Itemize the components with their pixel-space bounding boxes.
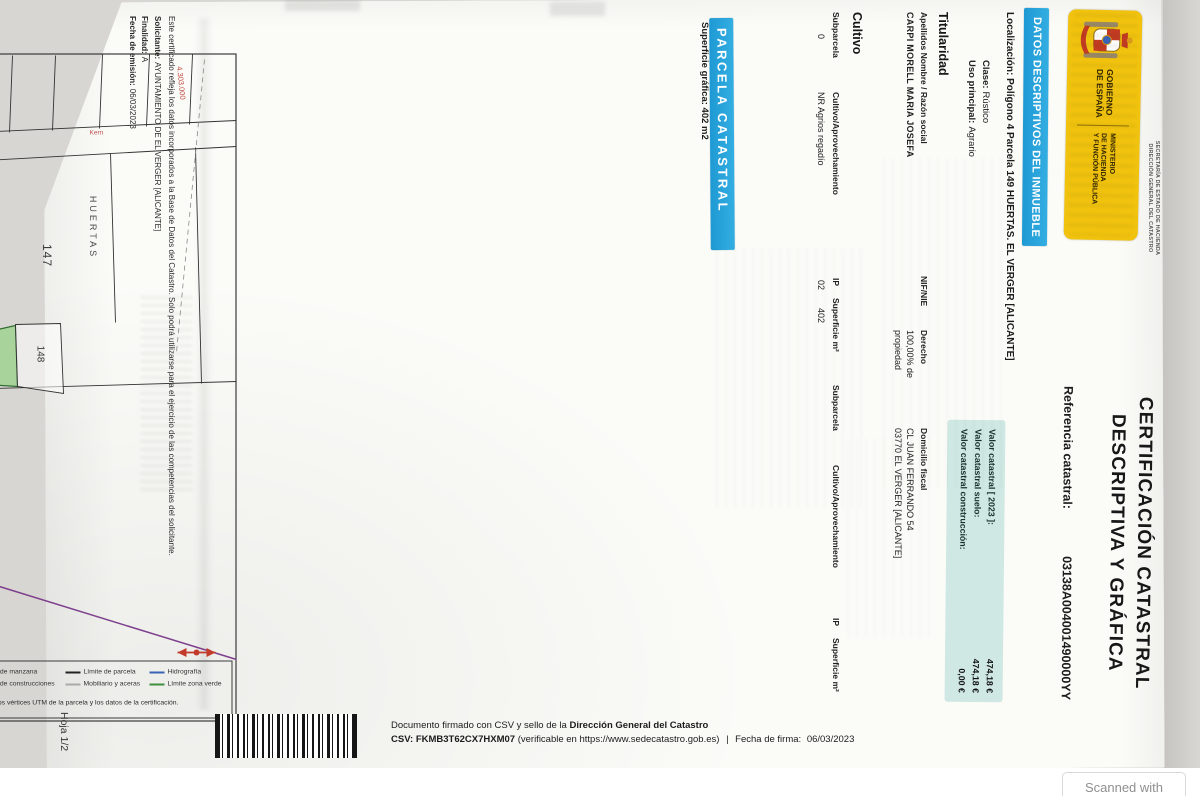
legend-item-zona-verde: Límite zona verde bbox=[150, 680, 234, 687]
legend-items: Límite de manzana Límite de parcela Hidr… bbox=[0, 668, 234, 687]
barcode bbox=[215, 714, 357, 758]
road-label: Kern bbox=[90, 129, 104, 136]
certificate-title: CERTIFICACIÓN CATASTRAL DESCRIPTIVA Y GR… bbox=[1101, 382, 1159, 705]
referencia-value: 03138A004001490000YY bbox=[1059, 556, 1074, 700]
field-uso-principal: Uso principal:Agrario bbox=[966, 60, 977, 157]
cultivo-title: Cultivo bbox=[850, 12, 864, 54]
zone-label-huertas: HUERTAS bbox=[89, 195, 99, 258]
certificate-conditions: Este certificado refleja los datos incor… bbox=[167, 16, 176, 556]
title-line-1: CERTIFICACIÓN CATASTRAL bbox=[1127, 382, 1158, 704]
line-sample-icon bbox=[150, 671, 165, 673]
localizacion-label: Localización: bbox=[1004, 12, 1015, 75]
titularidad-title: Titularidad bbox=[936, 12, 950, 76]
direccion-catastro-label: DIRECCIÓN GENERAL DEL CATASTRO bbox=[1146, 138, 1153, 258]
cultivo-header-superficie-2: Superficie m² bbox=[831, 638, 841, 692]
field-clase: Clase:Rústico bbox=[980, 60, 991, 123]
scan-bleedthrough bbox=[842, 438, 930, 638]
localizacion-value: Polígono 4 Parcela 149 HUERTAS. EL VERGE… bbox=[1004, 78, 1015, 360]
secretaria-estado-label: SECRETARÍA DE ESTADO DE HACIENDA bbox=[1153, 138, 1160, 258]
parcel-149-highlight bbox=[0, 325, 18, 386]
red-measure-mark bbox=[178, 648, 216, 657]
cultivo-header-aprovechamiento: Cultivo/Aprovechamiento bbox=[831, 92, 841, 195]
solicitante-line: Solicitante:AYUNTAMIENTO DE EL VERGER [A… bbox=[153, 16, 162, 231]
cadastral-certificate-document: SECRETARÍA DE ESTADO DE HACIENDA DIRECCI… bbox=[114, 8, 1162, 710]
map-legend: 240.350 Coordenadas U.T.M. Huso 31 ETRS8… bbox=[0, 660, 233, 718]
photo-edge-strip bbox=[1163, 0, 1200, 796]
legend-disclaimer: Esta cartografía solo podrá utilizarse j… bbox=[0, 699, 226, 706]
signature-text: Documento firmado con CSV y sello de la … bbox=[391, 714, 854, 748]
section-bar-datos-inmueble: DATOS DESCRIPTIVOS DEL INMUEBLE bbox=[1022, 8, 1049, 246]
legend-item-manzana: Límite de manzana bbox=[0, 668, 66, 675]
ministry-subheader: SECRETARÍA DE ESTADO DE HACIENDA DIRECCI… bbox=[1146, 138, 1160, 258]
scan-bleedthrough bbox=[1068, 13, 1139, 236]
line-sample-icon bbox=[150, 683, 165, 685]
title-line-2: DESCRIPTIVA Y GRÁFICA bbox=[1101, 382, 1132, 704]
section-bar-parcela-catastral: PARCELA CATASTRAL bbox=[709, 18, 735, 250]
legend-item-mobiliario: Mobiliario y aceras bbox=[66, 680, 150, 687]
titular-nombre-value: CARPI MORELL MARIA JOSEFA bbox=[905, 12, 915, 158]
fecha-emision-line: Fecha de emisión:06/03/2023 bbox=[128, 16, 137, 129]
referencia-catastral: Referencia catastral: 03138A004001490000… bbox=[1059, 386, 1076, 700]
scanned-with-button[interactable]: Scanned with bbox=[1062, 772, 1186, 796]
gobierno-espana-logo: GOBIERNO DE ESPAÑA MINISTERIO DE HACIEND… bbox=[1064, 9, 1143, 240]
scan-bleedthrough bbox=[712, 248, 862, 508]
finalidad-line: Finalidad:A bbox=[140, 16, 149, 62]
cadastral-map: 147 HUERTAS 150 149 148 Kern 240.150 240… bbox=[215, 30, 700, 700]
map-canvas: 147 HUERTAS 150 149 148 Kern 240.150 240… bbox=[0, 52, 238, 722]
cultivo-header-ip-2: IP bbox=[831, 618, 841, 626]
signature-line-2: CSV: FKMB3T62CX7HXM07 (verificable en ht… bbox=[391, 733, 854, 747]
field-localizacion: Localización: Polígono 4 Parcela 149 HUE… bbox=[1004, 12, 1015, 361]
cadastral-map-drawing bbox=[0, 52, 238, 722]
line-sample-icon bbox=[66, 683, 81, 685]
parcel-label-148: 148 bbox=[35, 345, 46, 362]
legend-item-hidrografia: Hidrografía bbox=[150, 668, 234, 675]
superficie-grafica: Superficie gráfica: 402 m2 bbox=[699, 22, 710, 140]
parcel-label-147: 147 bbox=[41, 243, 55, 266]
cultivo-aprovechamiento-value: NR Agrios regadío bbox=[816, 92, 826, 166]
hoja-page-label: Hoja 1/2 bbox=[58, 712, 70, 751]
line-sample-icon bbox=[66, 671, 81, 673]
referencia-label: Referencia catastral: bbox=[1060, 386, 1075, 509]
column-header-apellidos: Apellidos Nombre / Razón social bbox=[919, 12, 929, 144]
signature-line-1: Documento firmado con CSV y sello de la … bbox=[391, 719, 854, 733]
legend-item-parcela: Límite de parcela bbox=[66, 668, 150, 675]
cultivo-header-subparcela: Subparcela bbox=[831, 12, 841, 58]
photo-bottom-strip bbox=[0, 768, 1200, 796]
zone-boundary-line bbox=[0, 514, 237, 659]
legend-item-construcciones: Límite de construcciones bbox=[0, 680, 66, 687]
signature-strip: Documento firmado con CSV y sello de la … bbox=[215, 714, 854, 758]
cultivo-subparcela-value: 0 bbox=[816, 34, 826, 39]
